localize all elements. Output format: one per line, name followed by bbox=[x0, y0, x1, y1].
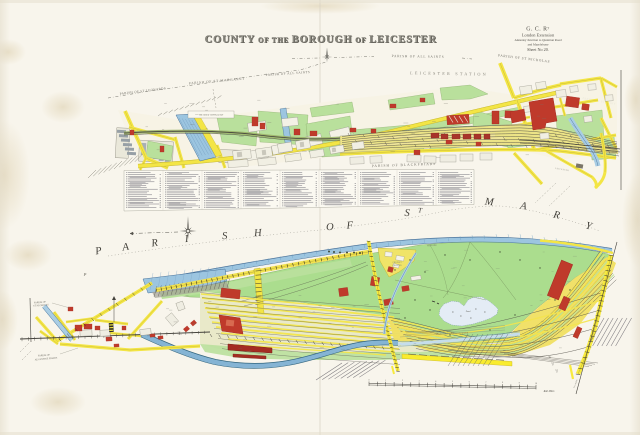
svg-text:6: 6 bbox=[469, 382, 470, 384]
svg-text:Pond: Pond bbox=[465, 311, 472, 313]
svg-text:London Extension: London Extension bbox=[522, 33, 555, 38]
svg-text:10: 10 bbox=[535, 383, 537, 385]
svg-text:9: 9 bbox=[519, 383, 520, 385]
svg-text:Rail Miles: Rail Miles bbox=[543, 390, 555, 393]
svg-text:4: 4 bbox=[435, 381, 436, 383]
svg-text:5: 5 bbox=[452, 381, 453, 383]
svg-text:Sheet No 20.: Sheet No 20. bbox=[527, 47, 549, 52]
svg-text:THE GREAT CENTRAL RLY: THE GREAT CENTRAL RLY bbox=[199, 114, 224, 117]
svg-text:2: 2 bbox=[402, 380, 403, 382]
svg-text:COUNTY OF THE BOROUGH OF LEICE: COUNTY OF THE BOROUGH OF LEICESTER bbox=[205, 35, 437, 46]
svg-text:O: O bbox=[326, 222, 335, 233]
svg-text:3: 3 bbox=[419, 381, 420, 383]
svg-text:1: 1 bbox=[385, 380, 386, 382]
svg-text:GROUND: GROUND bbox=[392, 265, 402, 267]
svg-text:0: 0 bbox=[369, 380, 370, 382]
svg-text:F: F bbox=[345, 220, 354, 231]
svg-text:CRICKET: CRICKET bbox=[392, 262, 402, 264]
svg-text:P: P bbox=[83, 272, 87, 277]
svg-text:7: 7 bbox=[485, 382, 486, 384]
svg-text:8: 8 bbox=[502, 382, 503, 384]
svg-text:Annesley Junction to Quainton: Annesley Junction to Quainton Road bbox=[514, 38, 562, 42]
svg-text:MIDLAND: MIDLAND bbox=[427, 244, 437, 248]
svg-text:and Marylebone: and Marylebone bbox=[528, 43, 549, 47]
